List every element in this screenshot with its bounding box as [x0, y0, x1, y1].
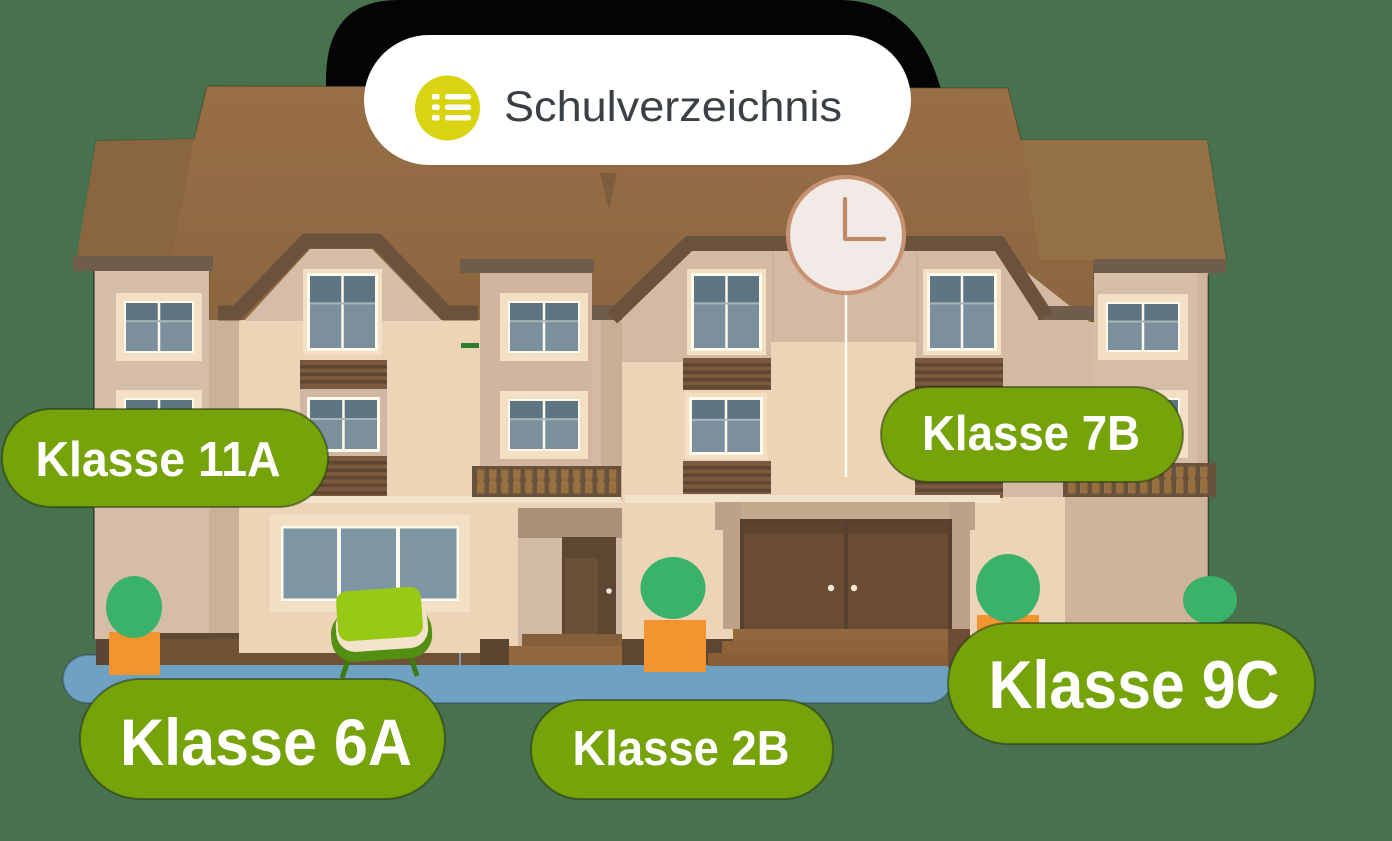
svg-text:Klasse 6A: Klasse 6A: [120, 705, 412, 779]
svg-text:Schulverzeichnis: Schulverzeichnis: [504, 84, 842, 131]
svg-text:Klasse 9C: Klasse 9C: [989, 647, 1280, 723]
svg-text:Klasse 7B: Klasse 7B: [922, 407, 1140, 461]
svg-text:Klasse 2B: Klasse 2B: [573, 721, 790, 776]
svg-text:Klasse 11A: Klasse 11A: [36, 433, 281, 487]
